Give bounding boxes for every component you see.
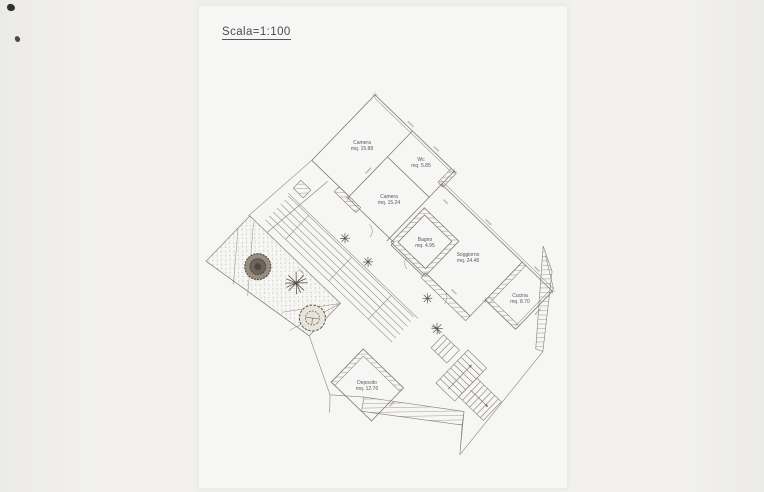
room-area-soggiorno: mq. 24.48 — [457, 258, 479, 264]
scanned-page: Scala=1:100 — [0, 0, 764, 492]
corner-ticks — [308, 92, 568, 348]
room-area-camera-2: mq. 15.24 — [378, 200, 400, 206]
room-area-bagno: mq. 4.95 — [415, 243, 435, 249]
room-area-camera-1: mq. 15.88 — [351, 146, 373, 152]
room-area-cucina: mq. 8.70 — [510, 299, 530, 305]
room-labels: Camera mq. 15.88 Wc mq. 5.85 Camera mq. … — [351, 140, 530, 392]
plan-geometry — [189, 84, 604, 492]
room-area-wc: mq. 5.85 — [411, 163, 431, 169]
room-area-deposito: mq. 12.76 — [356, 386, 378, 392]
floor-plan-drawing: Camera mq. 15.88 Wc mq. 5.85 Camera mq. … — [0, 0, 764, 492]
